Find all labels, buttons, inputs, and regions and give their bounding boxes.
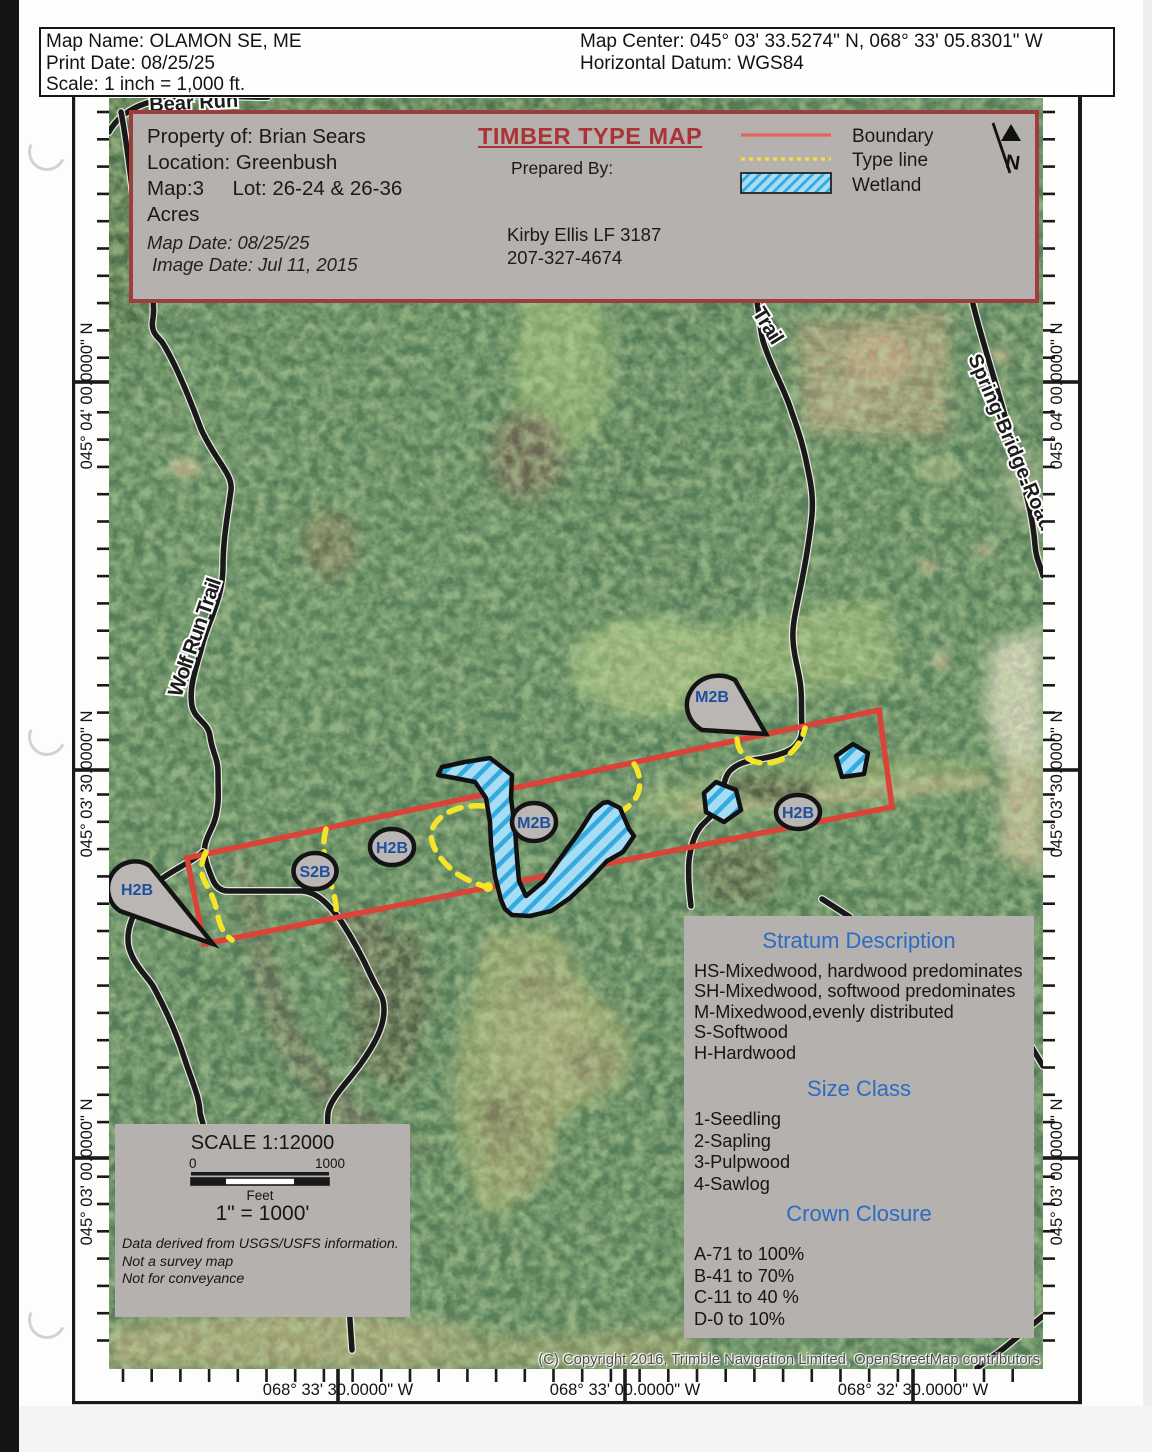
svg-text:068° 33' 00.0000" W: 068° 33' 00.0000" W [550, 1381, 701, 1399]
svg-text:H2B: H2B [782, 805, 814, 822]
svg-text:0: 0 [189, 1156, 197, 1171]
svg-text:045° 03' 00.0000" N: 045° 03' 00.0000" N [1048, 1099, 1066, 1246]
svg-text:068° 32' 30.0000" W: 068° 32' 30.0000" W [838, 1381, 989, 1399]
svg-text:M2B: M2B [517, 815, 551, 832]
svg-text:Boundary: Boundary [852, 126, 934, 147]
svg-text:045° 04' 00.0000" N: 045° 04' 00.0000" N [78, 323, 96, 470]
svg-text:1000: 1000 [315, 1156, 345, 1171]
svg-text:045° 03' 30.0000" N: 045° 03' 30.0000" N [1048, 711, 1066, 858]
svg-text:H2B: H2B [376, 840, 408, 857]
svg-text:N: N [1004, 151, 1021, 175]
svg-text:068° 33' 30.0000" W: 068° 33' 30.0000" W [263, 1381, 414, 1399]
svg-text:Feet: Feet [246, 1188, 273, 1203]
svg-text:H2B: H2B [121, 882, 153, 899]
svg-text:045° 03' 00.0000" N: 045° 03' 00.0000" N [78, 1099, 96, 1246]
svg-text:Wetland: Wetland [852, 175, 921, 196]
svg-text:045° 04' 00.0000" N: 045° 04' 00.0000" N [1048, 323, 1066, 470]
svg-text:S2B: S2B [299, 864, 330, 881]
svg-text:045° 03' 30.0000" N: 045° 03' 30.0000" N [78, 711, 96, 858]
svg-text:M2B: M2B [695, 689, 729, 706]
svg-text:Type line: Type line [852, 150, 928, 171]
